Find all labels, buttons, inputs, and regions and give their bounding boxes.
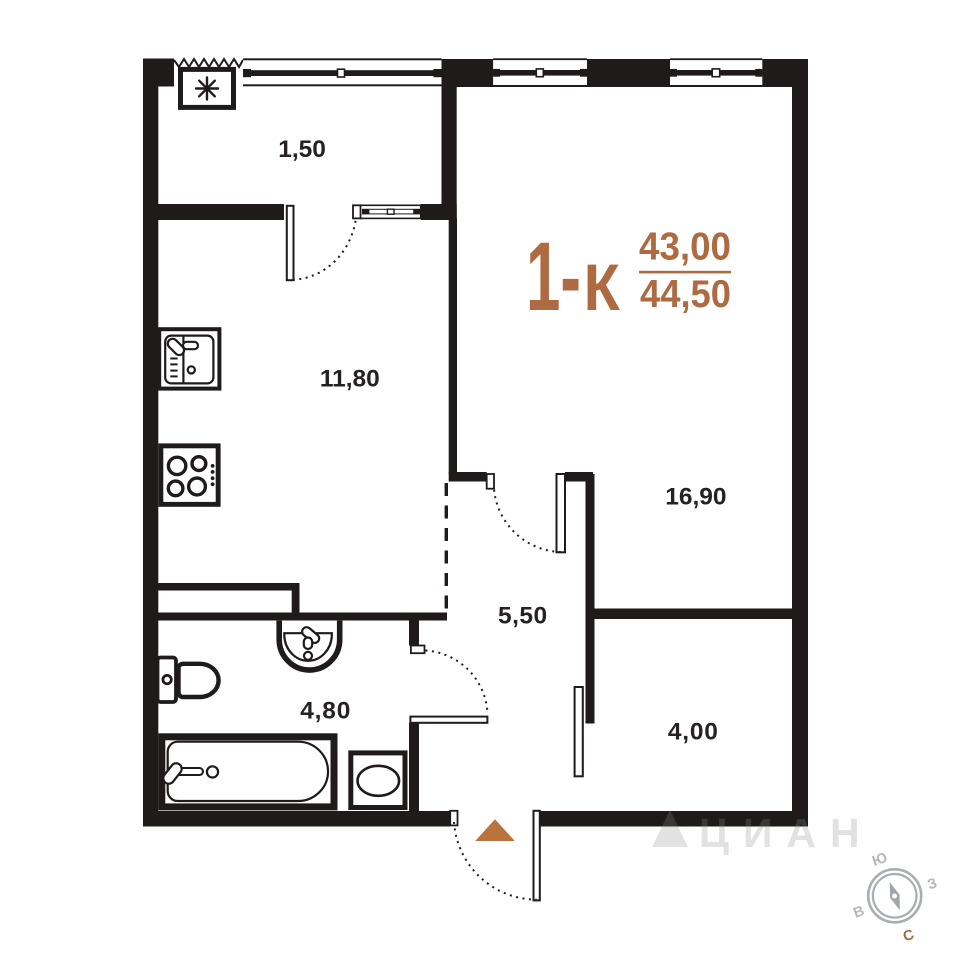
svg-text:4,80: 4,80 [300, 698, 351, 725]
svg-text:16,90: 16,90 [665, 484, 726, 511]
svg-text:43,00: 43,00 [639, 226, 731, 269]
svg-text:5,50: 5,50 [498, 603, 548, 630]
svg-text:1-: 1- [526, 222, 581, 331]
svg-text:1,50: 1,50 [278, 136, 326, 163]
svg-text:ЦИАН: ЦИАН [699, 810, 874, 856]
svg-text:К: К [584, 251, 621, 325]
svg-text:4,00: 4,00 [668, 719, 719, 746]
svg-text:44,50: 44,50 [640, 273, 731, 316]
svg-text:11,80: 11,80 [320, 366, 380, 393]
